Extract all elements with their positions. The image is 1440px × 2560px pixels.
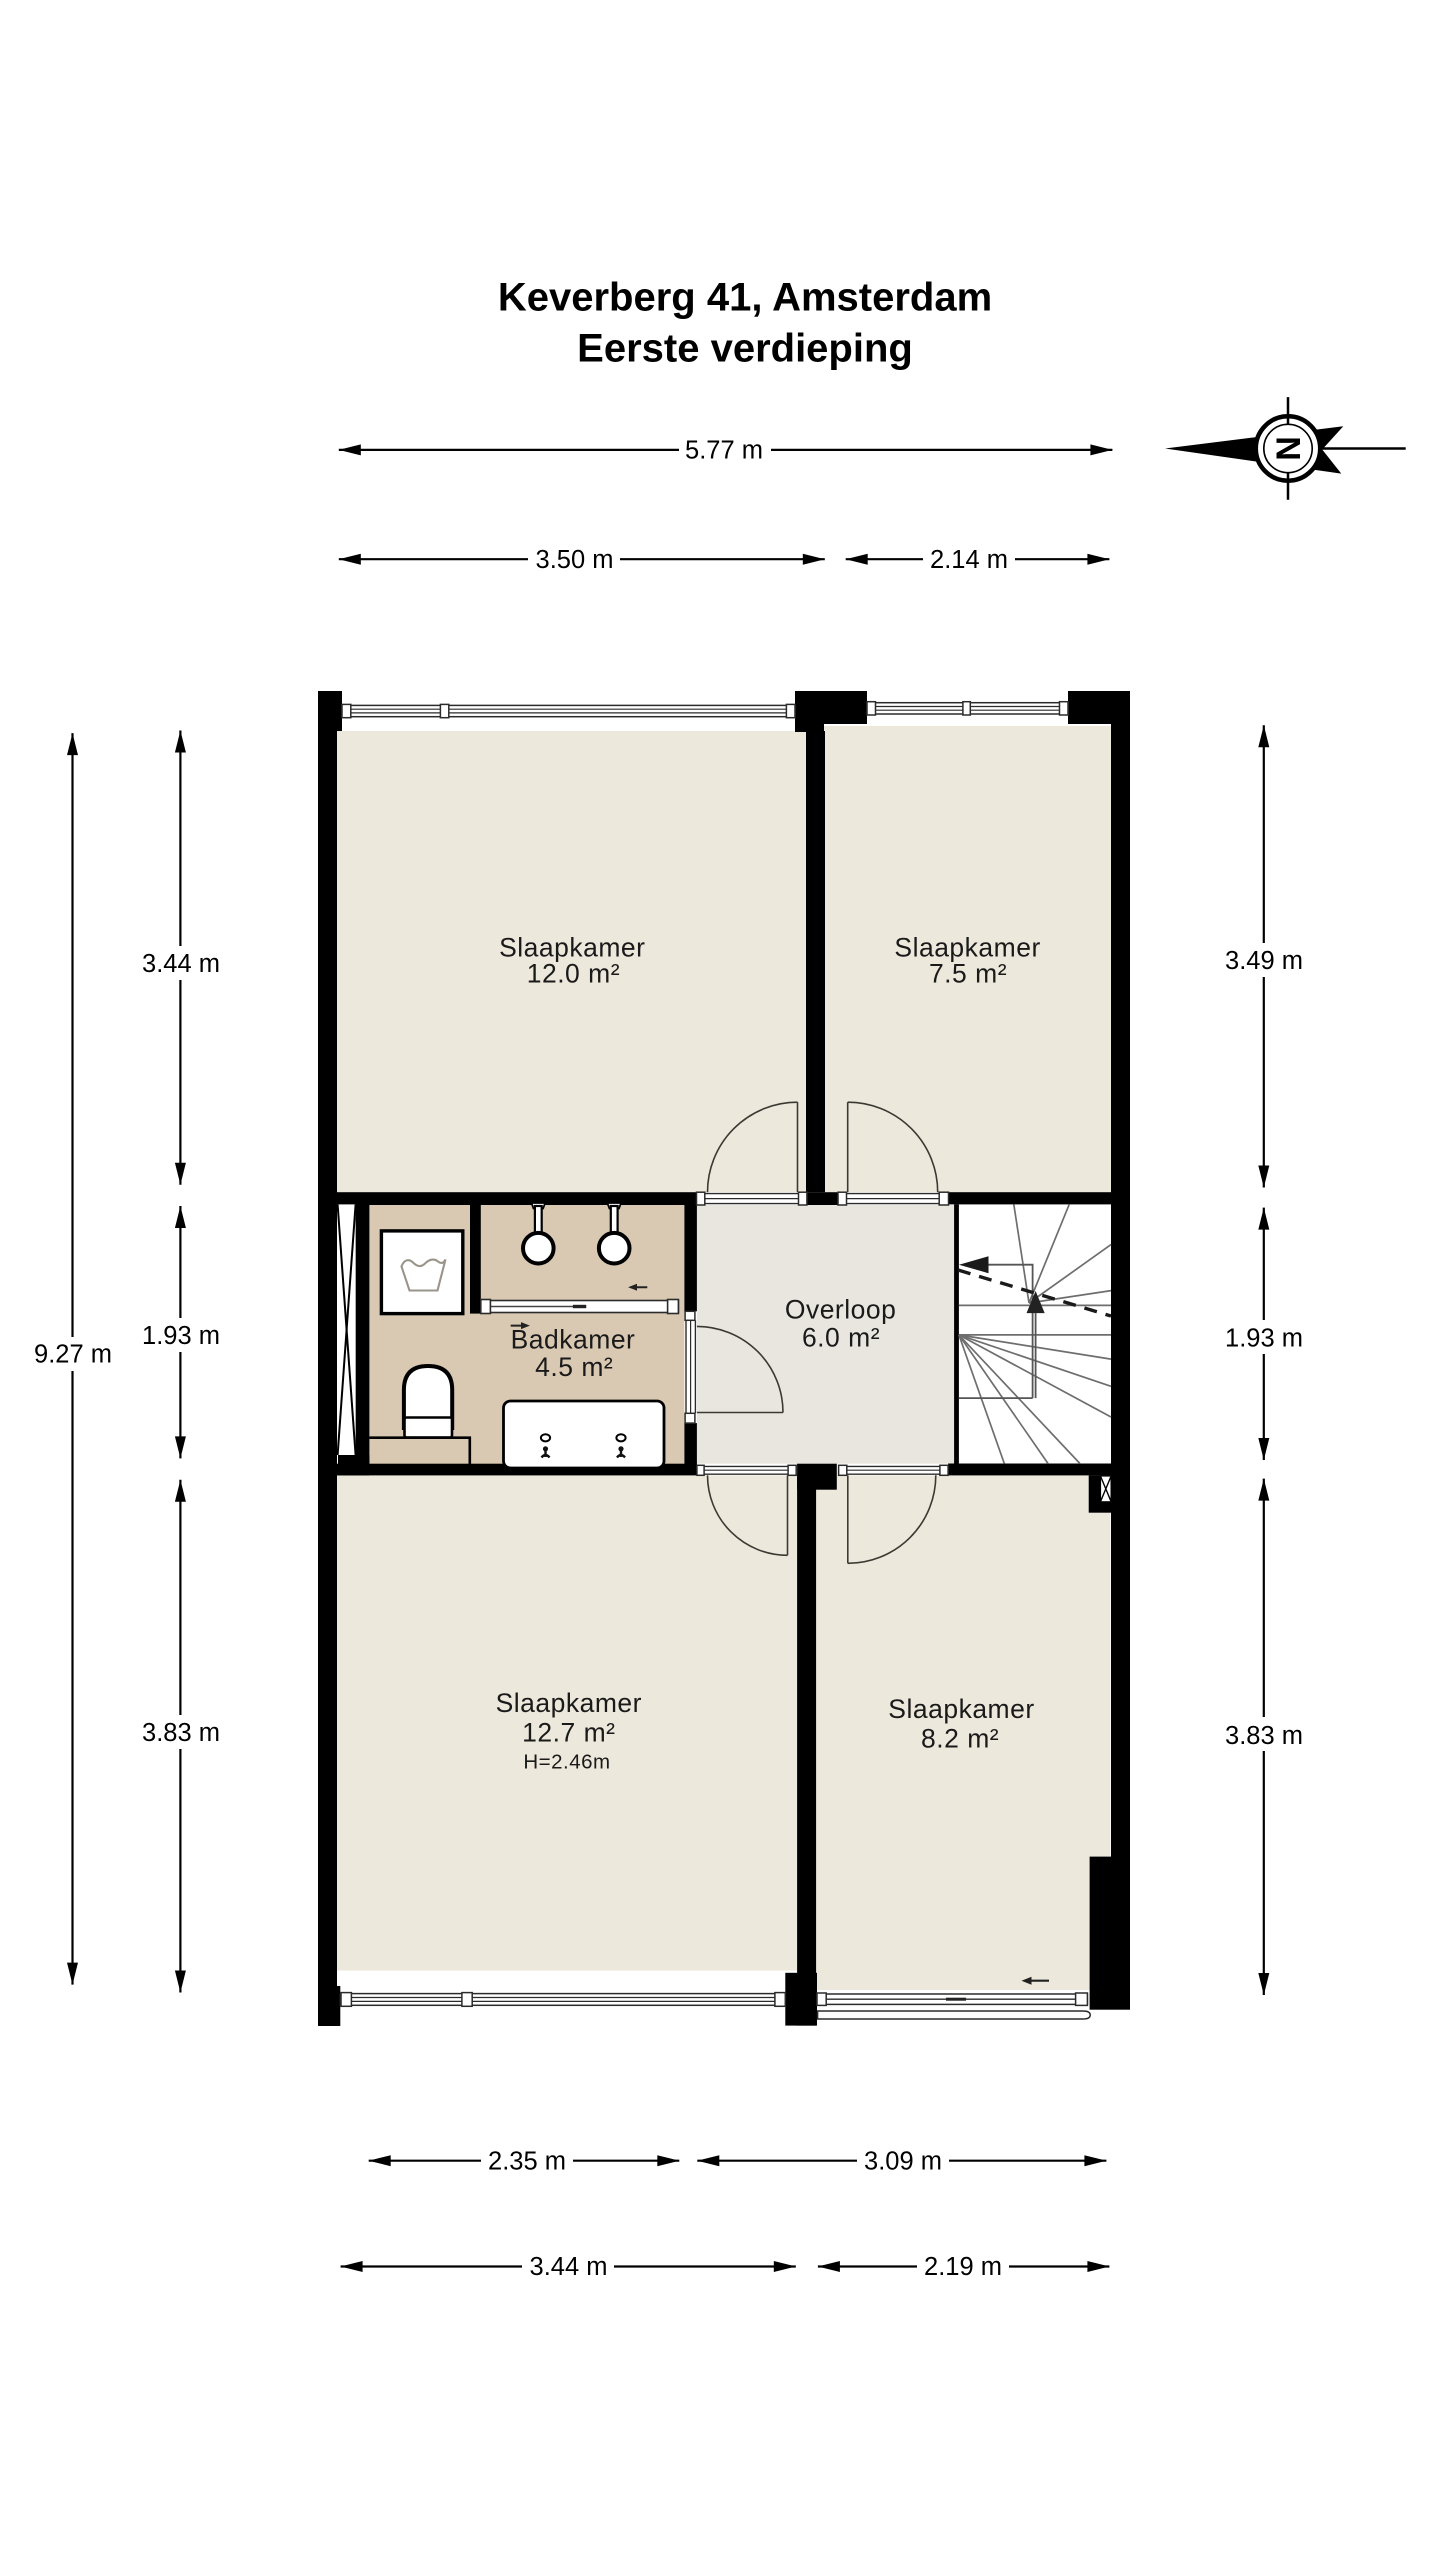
svg-text:Overloop: Overloop	[785, 1294, 897, 1324]
svg-text:6.0 m²: 6.0 m²	[802, 1323, 880, 1353]
svg-text:1.93 m: 1.93 m	[1225, 1324, 1303, 1352]
svg-text:N: N	[1270, 436, 1308, 461]
svg-text:Badkamer: Badkamer	[511, 1324, 636, 1354]
svg-text:7.5 m²: 7.5 m²	[929, 959, 1007, 989]
svg-text:3.44 m: 3.44 m	[530, 2253, 608, 2281]
svg-text:3.83 m: 3.83 m	[142, 1719, 220, 1747]
svg-text:2.35 m: 2.35 m	[488, 2147, 566, 2175]
svg-text:3.09 m: 3.09 m	[864, 2147, 942, 2175]
svg-text:3.49 m: 3.49 m	[1225, 947, 1303, 975]
svg-text:12.7 m²: 12.7 m²	[522, 1718, 615, 1748]
svg-text:3.44 m: 3.44 m	[142, 950, 220, 978]
svg-text:9.27 m: 9.27 m	[34, 1341, 112, 1369]
svg-text:2.14 m: 2.14 m	[930, 546, 1008, 574]
svg-text:Eerste verdieping: Eerste verdieping	[577, 327, 913, 371]
svg-text:4.5 m²: 4.5 m²	[535, 1352, 613, 1382]
svg-text:3.50 m: 3.50 m	[536, 546, 614, 574]
svg-text:Slaapkamer: Slaapkamer	[496, 1688, 642, 1718]
svg-text:8.2 m²: 8.2 m²	[921, 1724, 999, 1754]
svg-text:H=2.46m: H=2.46m	[523, 1751, 610, 1774]
svg-text:3.83 m: 3.83 m	[1225, 1722, 1303, 1750]
svg-text:Slaapkamer: Slaapkamer	[888, 1694, 1034, 1724]
svg-text:1.93 m: 1.93 m	[142, 1322, 220, 1350]
svg-text:5.77 m: 5.77 m	[685, 437, 763, 465]
svg-text:12.0 m²: 12.0 m²	[527, 959, 620, 989]
svg-text:Keverberg 41, Amsterdam: Keverberg 41, Amsterdam	[498, 276, 992, 320]
svg-text:2.19 m: 2.19 m	[924, 2253, 1002, 2281]
